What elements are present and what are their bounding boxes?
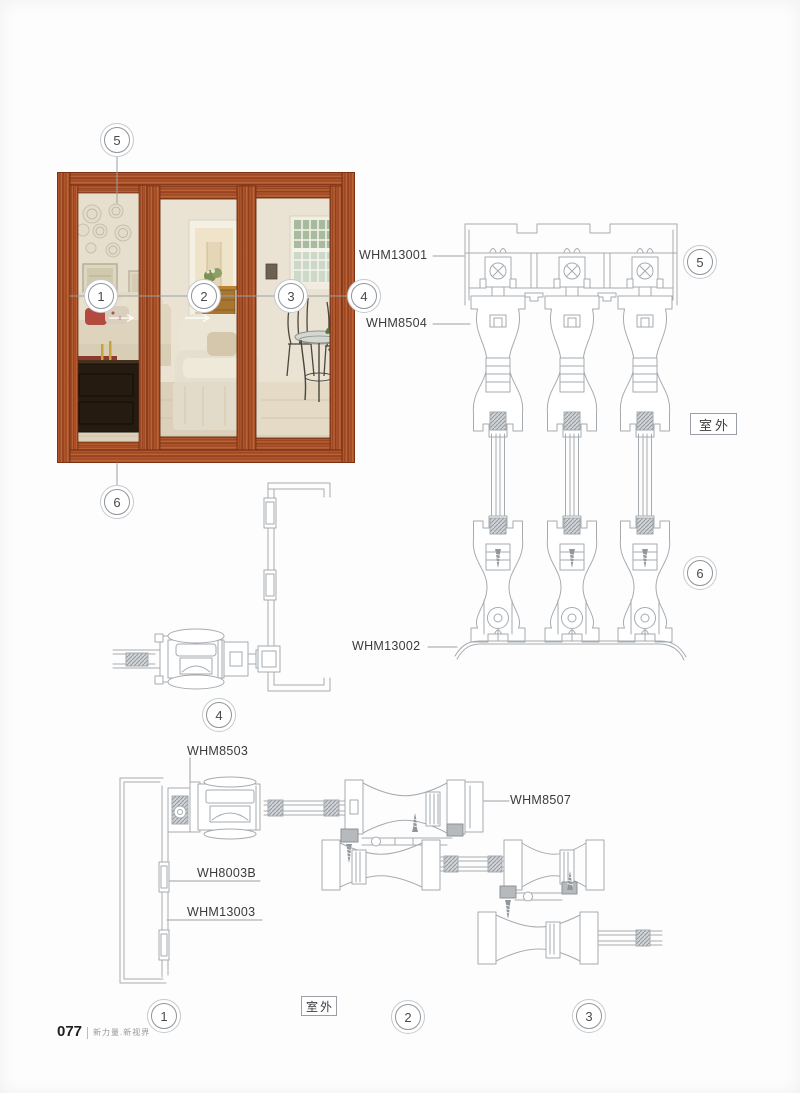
label-whm8503: WHM8503	[187, 745, 248, 758]
interlock-assembly	[113, 629, 280, 689]
top-sash-profiles	[471, 296, 672, 437]
callout-6-section: 6	[683, 556, 717, 590]
panel1-glass	[264, 800, 345, 816]
left-frame-jamb	[120, 778, 169, 983]
callout-3-plan: 3	[572, 999, 606, 1033]
label-whm8507: WHM8507	[510, 794, 571, 807]
callout-3-photo: 3	[274, 279, 308, 313]
glass-panes	[492, 434, 652, 518]
callout-5-section: 5	[683, 245, 717, 279]
page-number: 077	[57, 1024, 82, 1040]
label-whm8504: WHM8504	[366, 317, 427, 330]
page-footer: 077 新力量.新视界	[57, 1024, 150, 1040]
label-whm13001: WHM13001	[359, 249, 427, 262]
plan-section-drawing	[120, 777, 662, 983]
callout-2-photo: 2	[187, 279, 221, 313]
panel3-glass	[598, 930, 662, 946]
outdoor-tag-section: 室外	[690, 413, 737, 435]
callout-2-plan: 2	[391, 1000, 425, 1034]
bottom-sash-profiles	[471, 516, 672, 642]
catalog-page: 5 1 2 3 4 6 5 6 4 1 2 3 WHM13001 WHM8504…	[0, 0, 800, 1093]
panel3-stile	[478, 912, 598, 964]
leader-lines	[70, 157, 509, 920]
vertical-section-drawing	[455, 224, 686, 660]
panel1-lock-stile	[190, 777, 260, 839]
outdoor-tag-plan: 室外	[301, 996, 337, 1016]
callout-1-photo: 1	[84, 279, 118, 313]
label-whm13003: WHM13003	[187, 906, 255, 919]
callout-4-detail: 4	[202, 698, 236, 732]
technical-drawings	[0, 0, 800, 1093]
label-wh8003b: WH8003B	[197, 867, 256, 880]
callout-6-photo: 6	[100, 485, 134, 519]
callout-5-photo: 5	[100, 123, 134, 157]
head-track	[465, 224, 677, 305]
callout-1-plan: 1	[147, 999, 181, 1033]
label-whm13002: WHM13002	[352, 640, 420, 653]
footer-slogan: 新力量.新视界	[93, 1027, 150, 1038]
callout-4-photo: 4	[347, 279, 381, 313]
jamb-detail-drawing	[113, 483, 330, 691]
footer-divider	[87, 1027, 88, 1039]
